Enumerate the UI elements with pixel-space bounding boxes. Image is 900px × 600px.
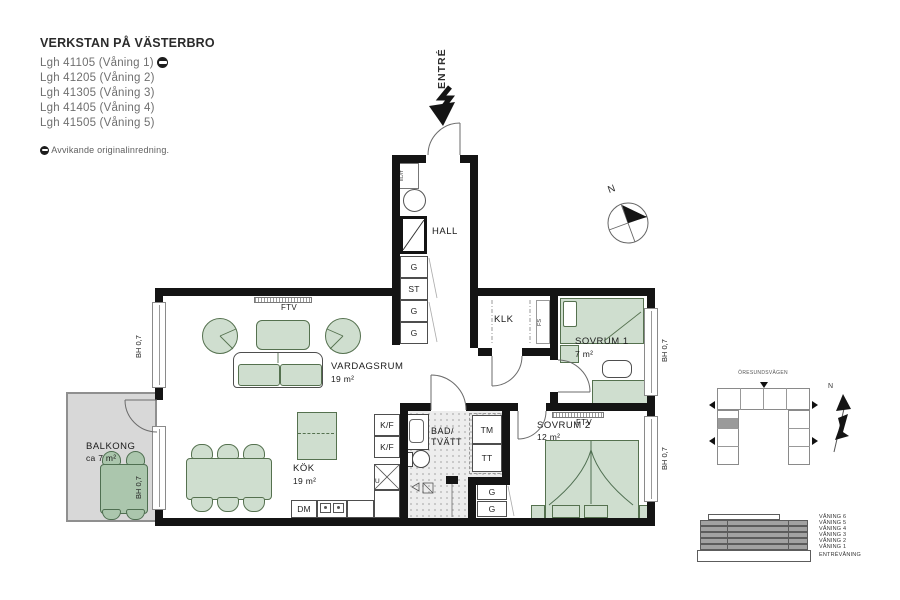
radiator-label: FTV [576,418,592,427]
room-label-balkong: BALKONG [86,441,135,452]
room-label-hall: HALL [432,226,458,237]
door-klk [492,356,522,386]
wall-segment [546,403,655,411]
deviation-mark-icon [157,57,168,68]
floor-seam [788,520,789,550]
minimap-north-icon [834,394,851,452]
coffee-table [256,320,310,350]
page-title: VERKSTAN PÅ VÄSTERBRO [40,36,215,50]
desk-chair [602,360,632,378]
dining-chair [243,444,265,459]
entrance-marker-icon [760,382,768,388]
window-height-label: BH 0,7 [134,322,146,372]
highlighted-unit [718,418,738,428]
bedroom-closet: G [477,484,507,500]
oven-label: U [375,478,380,485]
wall-segment [522,348,558,356]
pillow [584,505,608,518]
entrance-label: ENTRÉ [436,42,452,96]
wall-segment [470,288,655,296]
hall-closet: G [400,256,428,278]
header: VERKSTAN PÅ VÄSTERBRO Lgh 41105 (Våning … [40,36,215,155]
electrical-cabinet-label: EL/IT [399,164,408,188]
floorplan-page: VERKSTAN PÅ VÄSTERBRO Lgh 41105 (Våning … [0,0,900,600]
wall-segment [466,403,518,411]
room-area-kok: 19 m² [293,476,316,486]
window [644,308,658,396]
window-height-label: BH 0,7 [660,326,672,376]
sink-bowl [409,419,424,443]
wall-segment [392,155,400,345]
room-label-kok: KÖK [293,463,315,474]
apartment-row: Lgh 41205 (Våning 2) [40,71,215,86]
floor-label: VÅNING 1 [819,544,846,550]
unit-divider [740,388,741,410]
kitchen-counter [347,500,374,518]
apartment-label: Lgh 41505 (Våning 5) [40,117,155,129]
deviation-note: Avvikande originalinredning. [40,145,215,155]
apartment-label: Lgh 41305 (Våning 3) [40,87,155,99]
balcony-chair [126,451,145,465]
drain-dot [324,506,327,509]
pillow [563,301,577,327]
door-sovrum1 [558,360,590,392]
fs-shaft-label: FS [537,302,549,342]
desk [592,380,648,404]
wall-segment [468,477,510,485]
window [152,426,166,510]
entrance-marker-icon [812,437,818,445]
apartment-label: Lgh 41205 (Våning 2) [40,72,155,84]
floor-label: ENTRÉVÅNING [819,552,861,558]
apartment-row: Lgh 41305 (Våning 3) [40,86,215,101]
fridge-freezer: K/F [374,436,400,458]
dining-chair [243,497,265,512]
wall-segment [470,155,478,348]
kitchen-counter [374,490,400,518]
dining-chair [191,497,213,512]
building-right-wing [788,410,810,465]
floor-seam [727,520,728,550]
unit-divider [788,446,810,447]
sofa-cushion [238,364,280,386]
drain-dot [337,506,340,509]
fridge-freezer: K/F [374,414,400,436]
hall-closet: G [400,322,428,344]
kitchen-island [297,412,337,460]
wall-segment [155,518,655,526]
room-label-sovrum1: SOVRUM 1 [575,336,629,347]
apartment-row: Lgh 41405 (Våning 4) [40,101,215,116]
wall-segment [647,500,655,526]
room-label-vardagsrum: VARDAGSRUM [331,361,403,372]
pillow [552,505,580,518]
wall-segment [155,288,400,296]
room-label-bad1: BAD/ [431,426,454,436]
minimap-north-label: N [828,383,833,390]
wall-segment [392,155,426,163]
entrance-marker-icon [709,401,715,409]
wall-segment [502,411,510,483]
compass-icon [608,203,648,243]
dining-chair [191,444,213,459]
stove [374,464,400,490]
apartment-label: Lgh 41405 (Våning 4) [40,102,155,114]
hall-closet: ST [400,278,428,300]
door-swings [125,123,590,439]
hall-stool [403,189,426,212]
room-area-sovrum2: 12 m² [537,432,560,442]
dining-chair [217,444,239,459]
sofa-cushion [280,364,322,386]
armchair [325,318,361,354]
window [152,302,166,388]
door-bathroom [431,375,466,410]
dryer: TT [472,444,502,472]
window [644,416,658,502]
room-label-bad2: TVÄTT [431,437,462,447]
unit-divider [786,388,787,410]
compass-north-label: N [606,183,617,196]
nightstand [531,505,545,519]
wall-segment [478,348,492,356]
radiator-label: FTV [281,303,297,312]
entrance-marker-icon [812,401,818,409]
wall-segment [155,386,163,400]
window-height-label: BH 0,7 [134,464,146,512]
room-area-balkong: ca 7 m² [86,453,116,463]
room-area-sovrum1: 7 m² [575,349,593,359]
room-area-vardagsrum: 19 m² [331,374,354,384]
apartment-row: Lgh 41505 (Våning 5) [40,116,215,131]
washing-machine: TM [472,415,502,444]
wall-segment [400,403,408,518]
wall-segment [550,296,558,348]
apartment-row: Lgh 41105 (Våning 1) [40,56,215,71]
dining-chair [217,497,239,512]
unit-divider [763,388,764,410]
shaft [400,216,427,254]
toilet-bowl [412,450,430,468]
door-entrance [428,123,460,155]
unit-divider [717,446,739,447]
entrance-marker-icon [709,437,715,445]
apartment-label: Lgh 41105 (Våning 1) [40,57,154,69]
floor-bar-entry [697,550,811,562]
room-label-klk: KLK [494,314,513,325]
dishwasher: DM [291,500,317,518]
unit-divider [788,428,810,429]
wall-segment [550,356,558,360]
bedroom-closet: G [477,501,507,517]
deviation-mark-icon [40,146,49,155]
hall-closet: G [400,300,428,322]
wall-segment [647,288,655,310]
armchair [202,318,238,354]
street-label: ÖRESUNDSVÄGEN [713,370,813,376]
window-height-label: BH 0,7 [660,434,672,484]
kitchen-island-line [298,433,334,435]
unit-divider [717,428,739,429]
dining-table [186,458,272,500]
wall-segment [446,476,458,484]
